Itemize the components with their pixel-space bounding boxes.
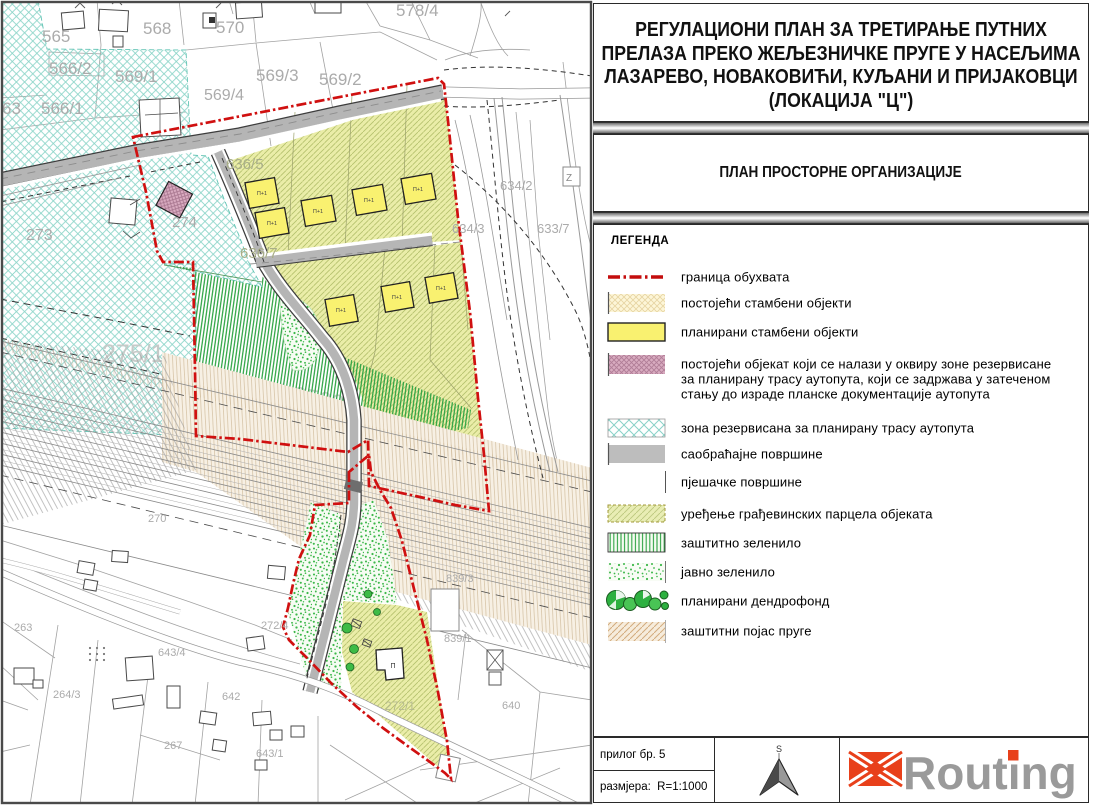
svg-text:839/1: 839/1 <box>444 633 472 645</box>
svg-text:634/3: 634/3 <box>452 221 485 236</box>
svg-text:634/2: 634/2 <box>500 178 533 193</box>
svg-text:П+1: П+1 <box>364 198 374 204</box>
svg-text:П+1: П+1 <box>436 286 446 292</box>
svg-text:264/3: 264/3 <box>53 689 81 701</box>
svg-text:П+1: П+1 <box>267 221 277 227</box>
svg-text:569/3: 569/3 <box>256 66 299 85</box>
svg-text:642: 642 <box>222 691 240 703</box>
svg-text:636/5: 636/5 <box>226 156 264 173</box>
svg-text:643/4: 643/4 <box>158 647 186 659</box>
svg-text:578/4: 578/4 <box>396 1 439 20</box>
svg-text:566/1: 566/1 <box>41 99 84 118</box>
svg-text:П+1: П+1 <box>392 295 402 301</box>
svg-text:63: 63 <box>2 99 21 118</box>
svg-text:П+1: П+1 <box>313 209 323 215</box>
svg-text:640: 640 <box>502 700 520 712</box>
svg-text:П+1: П+1 <box>257 191 267 197</box>
svg-text:643/1: 643/1 <box>256 748 284 760</box>
svg-text:272/1: 272/1 <box>385 699 415 713</box>
svg-text:633/7: 633/7 <box>537 221 570 236</box>
svg-text:274: 274 <box>172 214 197 231</box>
svg-text:П+1: П+1 <box>413 187 423 193</box>
svg-text:272/4: 272/4 <box>261 620 289 632</box>
svg-text:570: 570 <box>216 18 244 37</box>
svg-text:636/7: 636/7 <box>240 245 278 262</box>
svg-text:263: 263 <box>14 622 32 634</box>
svg-text:273: 273 <box>26 227 53 244</box>
svg-text:568: 568 <box>143 19 171 38</box>
svg-text:П: П <box>390 663 395 670</box>
svg-text:270: 270 <box>148 513 166 525</box>
svg-text:Z: Z <box>566 173 572 184</box>
svg-text:569/1: 569/1 <box>115 67 158 86</box>
svg-text:565: 565 <box>42 27 70 46</box>
svg-text:S: S <box>776 744 782 754</box>
svg-text:Routıng: Routıng <box>903 747 1077 799</box>
svg-text:П+1: П+1 <box>336 308 346 314</box>
svg-text:839/3: 839/3 <box>446 573 474 585</box>
svg-text:566/2: 566/2 <box>49 59 92 78</box>
svg-text:569/4: 569/4 <box>204 87 244 104</box>
svg-text:569/2: 569/2 <box>319 70 362 89</box>
svg-text:267: 267 <box>164 740 182 752</box>
